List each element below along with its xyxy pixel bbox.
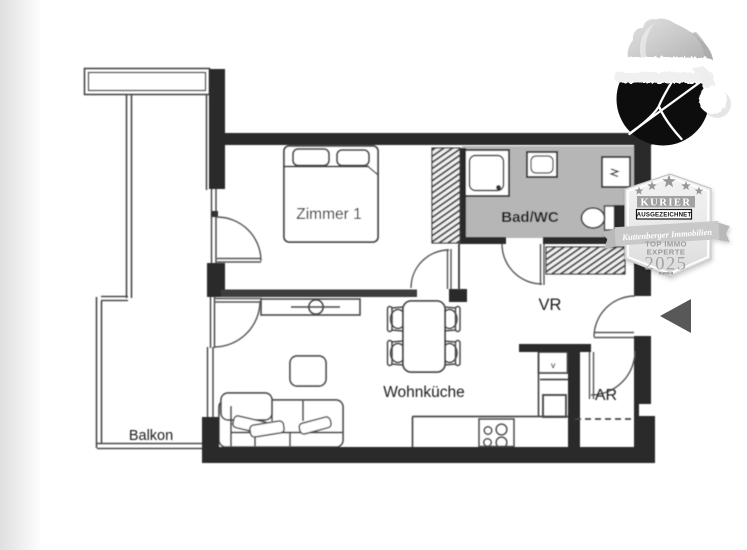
svg-text:Balkon: Balkon (129, 428, 173, 444)
svg-text:VR: VR (539, 296, 562, 314)
svg-text:KURIER: KURIER (640, 198, 691, 209)
svg-text:Wohnküche: Wohnküche (383, 384, 465, 401)
svg-text:Zimmer 1: Zimmer 1 (296, 206, 361, 223)
svg-text:AR: AR (595, 387, 617, 404)
svg-text:KURIER: KURIER (659, 272, 674, 276)
svg-text:AUSGEZEICHNET: AUSGEZEICHNET (637, 212, 692, 219)
svg-text:Bad/WC: Bad/WC (501, 209, 559, 226)
